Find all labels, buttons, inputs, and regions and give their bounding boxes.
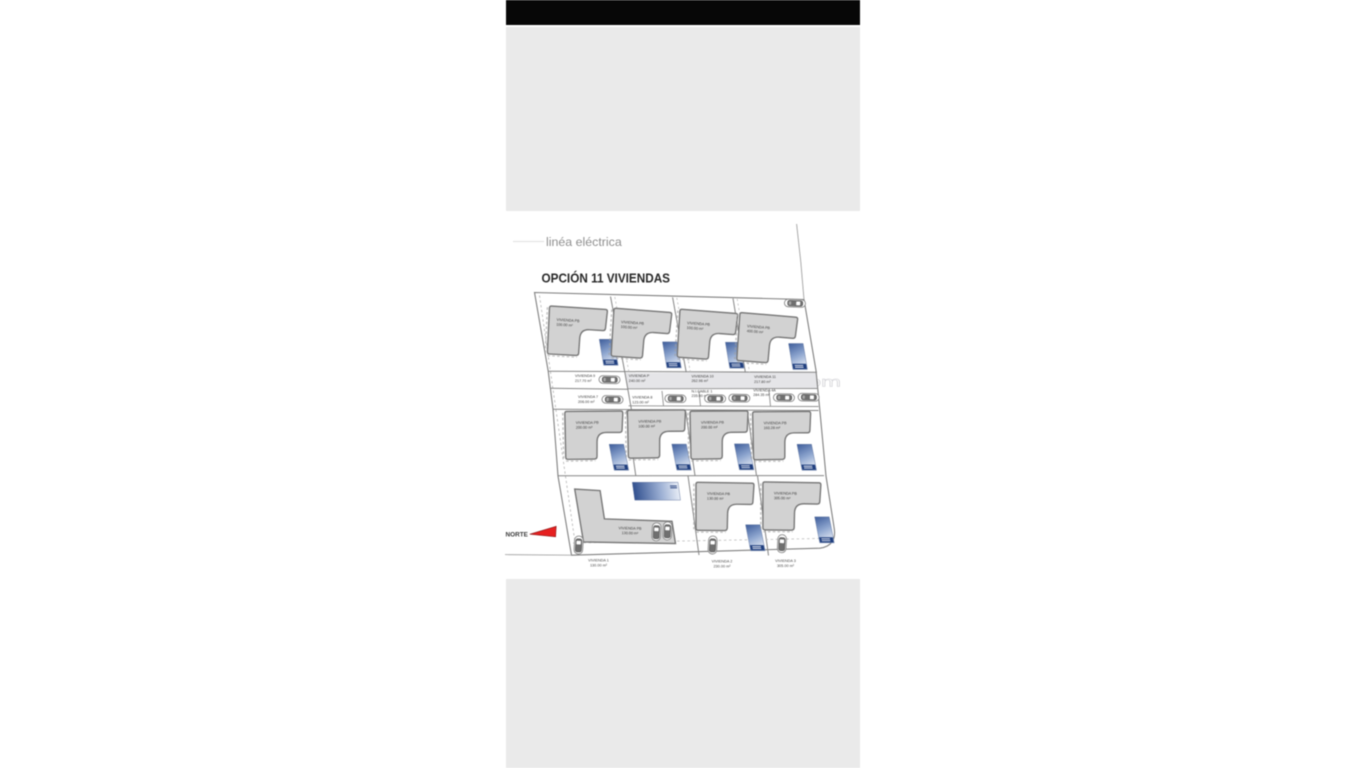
svg-text:VIVIENDA 1130.00 m²: VIVIENDA 1130.00 m² bbox=[588, 559, 609, 568]
svg-text:OPCIÓN 11 VIVIENDAS: OPCIÓN 11 VIVIENDAS bbox=[542, 271, 671, 286]
svg-text:linéa eléctrica: linéa eléctrica bbox=[546, 235, 622, 249]
svg-text:VIVIENDA 3305.00 m²: VIVIENDA 3305.00 m² bbox=[775, 559, 796, 568]
svg-text:NORTE: NORTE bbox=[506, 532, 529, 539]
svg-text:VIVIENDA 2230.00 m²: VIVIENDA 2230.00 m² bbox=[712, 559, 733, 568]
